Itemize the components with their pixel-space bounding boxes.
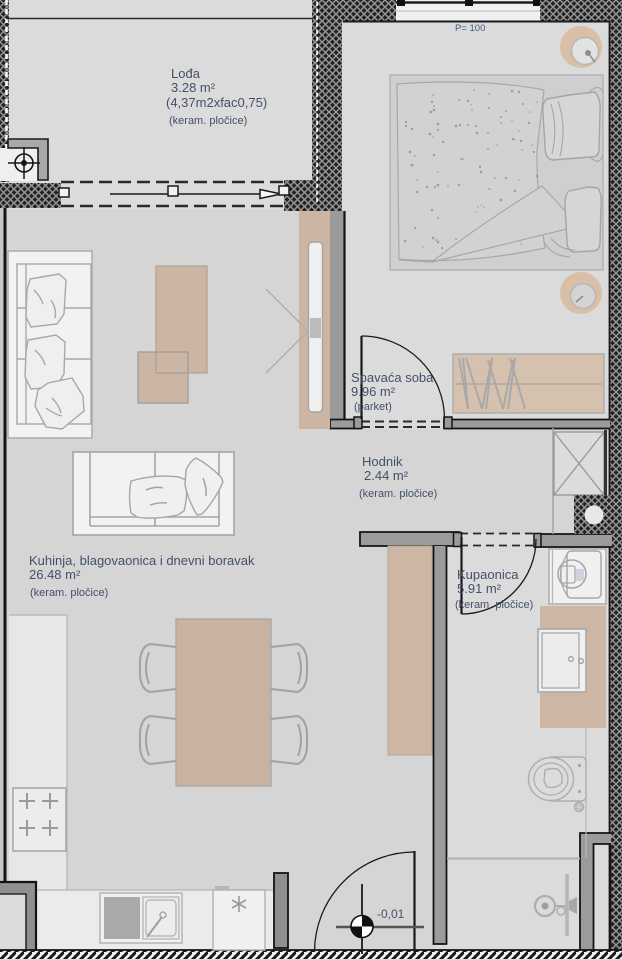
svg-text:Lođa: Lođa [171, 66, 201, 81]
svg-text:(keram. pločice): (keram. pločice) [30, 587, 108, 599]
svg-text:9.96 m²: 9.96 m² [351, 384, 396, 399]
svg-text:Kuhinja, blagovaonica i dnevni: Kuhinja, blagovaonica i dnevni boravak [29, 553, 255, 568]
svg-text:26.48 m²: 26.48 m² [29, 567, 81, 582]
svg-text:5.91 m²: 5.91 m² [457, 581, 502, 596]
svg-text:(keram. pločice): (keram. pločice) [169, 115, 247, 127]
svg-text:(keram. pločice): (keram. pločice) [455, 599, 533, 611]
svg-text:P= 100: P= 100 [455, 23, 485, 34]
svg-text:Hodnik: Hodnik [362, 454, 403, 469]
svg-text:(parket): (parket) [354, 401, 392, 413]
svg-text:Kupaonica: Kupaonica [457, 567, 519, 582]
svg-text:2.44 m²: 2.44 m² [364, 468, 409, 483]
svg-text:(keram. pločice): (keram. pločice) [359, 488, 437, 500]
svg-text:3.28 m²: 3.28 m² [171, 80, 216, 95]
svg-text:Spavaća soba: Spavaća soba [351, 370, 434, 385]
svg-text:(4,37m2xfac0,75): (4,37m2xfac0,75) [166, 95, 267, 110]
svg-text:-0,01: -0,01 [377, 907, 405, 921]
